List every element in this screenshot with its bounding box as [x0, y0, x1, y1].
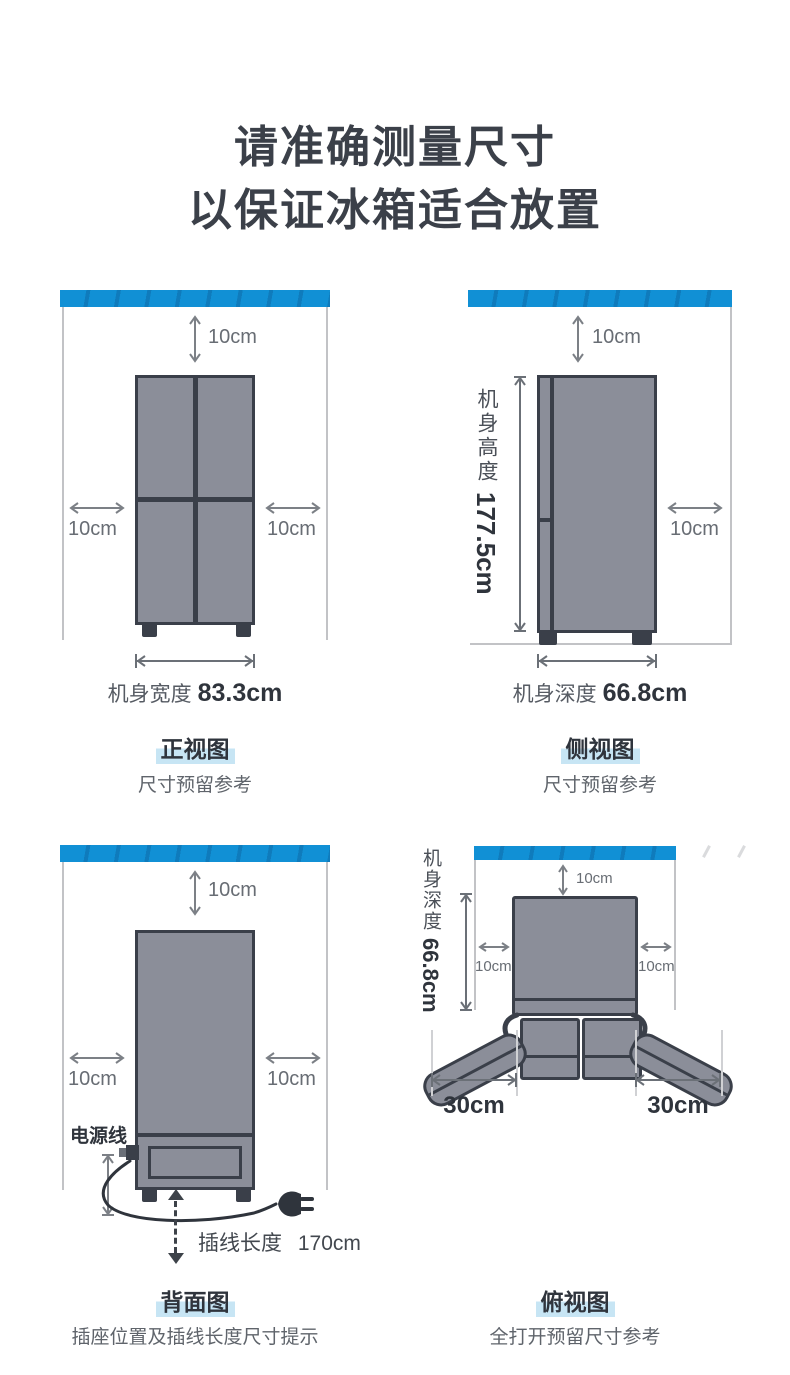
page-title: 请准确测量尺寸 以保证冰箱适合放置 — [0, 116, 790, 242]
back-view-caption: 背面图 — [60, 1283, 330, 1317]
right-clearance-arrow-icon — [640, 940, 672, 954]
top-view-caption: 俯视图 — [415, 1283, 735, 1317]
left-clearance-arrow-icon — [68, 500, 126, 516]
right-wall-line — [674, 860, 676, 1010]
right-door-dimension-arrow-icon — [634, 1072, 722, 1088]
left-wall-line — [474, 860, 476, 1010]
height-value: 177.5cm — [471, 484, 501, 595]
width-dimension-arrow-icon — [134, 652, 256, 670]
top-clearance-label: 10cm — [576, 870, 613, 887]
fridge-side-body — [554, 378, 654, 630]
width-value: 83.3cm — [198, 679, 283, 707]
top-clearance-arrow-icon — [187, 869, 203, 917]
door-handle-line — [523, 1055, 577, 1058]
fridge-door-bottom-left — [138, 502, 193, 622]
right-wall-line — [730, 307, 732, 645]
depth-dimension: 机身深度66.8cm — [460, 678, 740, 708]
title-line-2: 以保证冰箱适合放置 — [0, 179, 790, 242]
cord-length-dimension: 插线长度 170cm — [198, 1227, 361, 1257]
depth-label: 机身深度 — [420, 848, 441, 932]
top-clearance-label: 10cm — [592, 326, 641, 349]
left-door-dimension-arrow-icon — [430, 1072, 518, 1088]
left-wall-line — [62, 307, 64, 640]
ceiling-bar — [60, 845, 330, 862]
title-line-1: 请准确测量尺寸 — [0, 116, 790, 179]
left-wall-line — [62, 862, 64, 1190]
top-clearance-arrow-icon — [570, 314, 586, 364]
left-clearance-arrow-icon — [478, 940, 510, 954]
fridge-door-top-left — [138, 378, 193, 497]
fridge-side-door-upper — [540, 378, 550, 518]
side-view-subcaption: 尺寸预留参考 — [460, 770, 740, 797]
fridge-front — [135, 375, 255, 625]
ceiling-bar — [468, 290, 732, 307]
door-handle-line — [429, 1045, 522, 1096]
back-view-panel: 10cm 10cm 10cm 电源线 — [60, 845, 330, 1355]
right-wall-line — [326, 307, 328, 640]
right-clearance-arrow-icon — [264, 1050, 322, 1066]
door-handle-line — [634, 1045, 727, 1096]
fridge-side-door-lower — [540, 522, 550, 630]
right-door-clearance-label: 30cm — [634, 1092, 722, 1120]
fridge-foot — [632, 633, 652, 645]
back-view-subcaption: 插座位置及插线长度尺寸提示 — [60, 1322, 330, 1349]
width-label: 机身宽度 — [108, 683, 192, 706]
width-dimension: 机身宽度83.3cm — [60, 678, 330, 708]
dashed-arrow-bottom-tip — [168, 1253, 184, 1264]
front-view-caption: 正视图 — [60, 730, 330, 764]
fridge-side — [537, 375, 657, 633]
front-view-subcaption: 尺寸预留参考 — [60, 770, 330, 797]
right-clearance-arrow-icon — [666, 500, 724, 516]
left-clearance-arrow-icon — [68, 1050, 126, 1066]
fridge-foot — [539, 633, 557, 645]
side-view-caption: 侧视图 — [460, 730, 740, 764]
side-view-panel: 10cm 机身高度177.5cm 10cm 机身深度66.8cm 侧视图 尺寸预… — [460, 290, 740, 800]
middle-door-left — [520, 1018, 580, 1080]
top-view-subcaption: 全打开预留尺寸参考 — [415, 1322, 735, 1349]
right-clearance-label: 10cm — [267, 518, 316, 541]
top-clearance-label: 10cm — [208, 879, 257, 902]
ceiling-bar — [60, 290, 330, 307]
depth-dimension: 机身深度66.8cm — [417, 848, 444, 1013]
wall-hatch-mark — [702, 845, 711, 858]
dashed-cord-drop-line — [174, 1201, 177, 1253]
wall-hatch-mark — [737, 845, 746, 858]
height-label: 机身高度 — [475, 388, 498, 484]
back-panel-divider — [138, 1133, 252, 1137]
dashed-arrow-top-tip — [168, 1189, 184, 1200]
depth-dimension-arrow-icon — [536, 652, 658, 670]
front-view-panel: 10cm 10cm 10cm 机身宽度83.3cm 正视图 尺寸预留参考 — [60, 290, 330, 800]
power-cord-icon — [70, 1155, 326, 1235]
depth-value: 66.8cm — [603, 679, 688, 707]
fridge-door-bottom-right — [198, 502, 253, 622]
cord-length-value: 170cm — [298, 1232, 361, 1255]
cord-length-label: 插线长度 — [198, 1232, 282, 1255]
fridge-door-top-right — [198, 378, 253, 497]
top-clearance-arrow-icon — [187, 314, 203, 364]
left-clearance-label: 10cm — [475, 958, 512, 975]
top-clearance-label: 10cm — [208, 326, 257, 349]
page: 请准确测量尺寸 以保证冰箱适合放置 10cm 10cm 10cm — [0, 0, 790, 1375]
right-clearance-label: 10cm — [670, 518, 719, 541]
front-edge-divider — [515, 998, 635, 1001]
fridge-side-door-strip — [540, 378, 550, 630]
fridge-top-body — [512, 896, 638, 1016]
right-wall-line — [326, 862, 328, 1190]
left-clearance-label: 10cm — [68, 1068, 117, 1091]
floor-line — [470, 643, 732, 645]
top-clearance-arrow-icon — [556, 864, 570, 896]
power-plug-icon — [278, 1192, 314, 1217]
top-view-panel: 机身深度66.8cm 10cm 10cm 10cm — [415, 840, 760, 1350]
wall-bar — [474, 846, 676, 860]
fridge-back — [135, 930, 255, 1190]
right-clearance-label: 10cm — [267, 1068, 316, 1091]
left-door-clearance-label: 30cm — [430, 1092, 518, 1120]
right-clearance-arrow-icon — [264, 500, 322, 516]
depth-label: 机身深度 — [513, 683, 597, 706]
height-dimension: 机身高度177.5cm — [470, 388, 501, 595]
depth-value: 66.8cm — [418, 932, 443, 1013]
depth-dimension-arrow-icon — [458, 892, 474, 1012]
right-clearance-label: 10cm — [638, 958, 675, 975]
fridge-foot — [236, 625, 251, 637]
height-dimension-arrow-icon — [512, 375, 528, 633]
power-cord-label: 电源线 — [70, 1121, 127, 1148]
left-clearance-label: 10cm — [68, 518, 117, 541]
fridge-foot — [142, 625, 157, 637]
